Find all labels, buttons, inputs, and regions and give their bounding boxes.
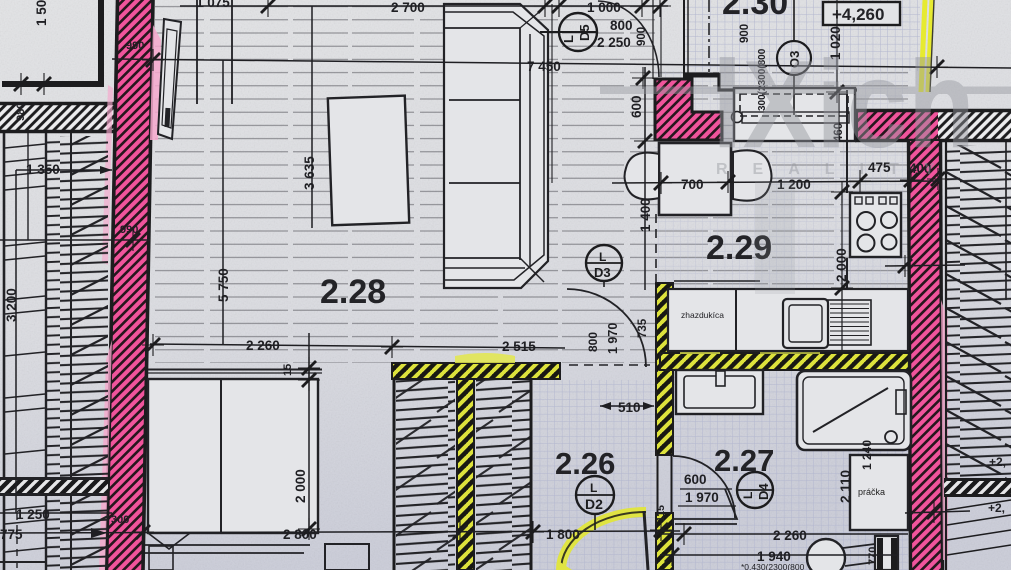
svg-text:775: 775 <box>0 527 23 542</box>
svg-text:lXich: lXich <box>712 36 975 174</box>
svg-text:600: 600 <box>629 95 644 118</box>
svg-text:D2: D2 <box>585 496 603 512</box>
svg-text:2 250: 2 250 <box>597 35 631 50</box>
svg-text:2.28: 2.28 <box>320 273 386 311</box>
svg-text:5 750: 5 750 <box>216 268 231 302</box>
svg-text:300: 300 <box>111 514 129 526</box>
svg-text:900: 900 <box>636 27 648 46</box>
svg-text:2.26: 2.26 <box>555 446 615 481</box>
svg-text:1 075: 1 075 <box>196 0 230 10</box>
svg-text:3 635: 3 635 <box>302 156 317 190</box>
svg-text:2.30: 2.30 <box>722 0 788 22</box>
svg-text:2 515: 2 515 <box>502 339 536 354</box>
svg-text:990: 990 <box>120 224 138 236</box>
svg-text:1 400: 1 400 <box>638 198 653 232</box>
svg-text:980: 980 <box>15 103 27 121</box>
svg-text:L: L <box>590 481 597 495</box>
svg-text:800: 800 <box>610 18 633 33</box>
svg-text:REALITY: REALITY <box>716 161 959 178</box>
svg-text:2 260: 2 260 <box>773 528 807 543</box>
svg-text:510: 510 <box>618 400 641 415</box>
svg-text:L: L <box>741 492 755 499</box>
svg-text:L: L <box>599 250 606 264</box>
svg-text:7 450: 7 450 <box>527 59 561 74</box>
svg-text:1 970: 1 970 <box>606 323 620 354</box>
svg-text:1 250: 1 250 <box>16 507 50 522</box>
svg-text:735: 735 <box>637 318 649 338</box>
svg-text:770: 770 <box>867 547 879 565</box>
svg-text:115: 115 <box>655 505 667 522</box>
svg-text:800: 800 <box>586 332 600 352</box>
svg-text:600: 600 <box>684 472 707 487</box>
svg-text:D4: D4 <box>756 483 771 500</box>
svg-text:2 700: 2 700 <box>391 0 425 15</box>
svg-text:1 50: 1 50 <box>34 0 49 26</box>
svg-text:*0,430(2300(800: *0,430(2300(800 <box>741 562 805 570</box>
svg-text:1 000: 1 000 <box>587 0 621 15</box>
svg-text:700: 700 <box>681 177 704 192</box>
svg-text:+2,: +2, <box>988 501 1005 515</box>
svg-text:2 800: 2 800 <box>283 527 317 542</box>
svg-text:1 240: 1 240 <box>860 440 874 470</box>
svg-text:+2,: +2, <box>989 455 1006 469</box>
svg-text:3 200: 3 200 <box>4 288 19 322</box>
svg-text:2 000: 2 000 <box>293 469 308 503</box>
svg-text:2 000: 2 000 <box>834 248 849 282</box>
svg-text:15: 15 <box>282 364 294 376</box>
svg-text:D3: D3 <box>594 265 611 280</box>
svg-text:+4,260: +4,260 <box>832 5 884 24</box>
svg-text:990: 990 <box>126 40 144 52</box>
svg-text:D5: D5 <box>577 24 592 41</box>
svg-text:2 110: 2 110 <box>838 470 853 503</box>
svg-text:2.27: 2.27 <box>714 443 774 478</box>
svg-text:1 800: 1 800 <box>546 527 580 542</box>
svg-text:1 970: 1 970 <box>685 490 719 505</box>
svg-text:práčka: práčka <box>858 487 885 497</box>
svg-text:1 350: 1 350 <box>26 162 60 177</box>
svg-text:2 260: 2 260 <box>246 338 280 353</box>
svg-text:L: L <box>561 35 576 43</box>
svg-text:zhazdukíca: zhazdukíca <box>681 310 724 320</box>
